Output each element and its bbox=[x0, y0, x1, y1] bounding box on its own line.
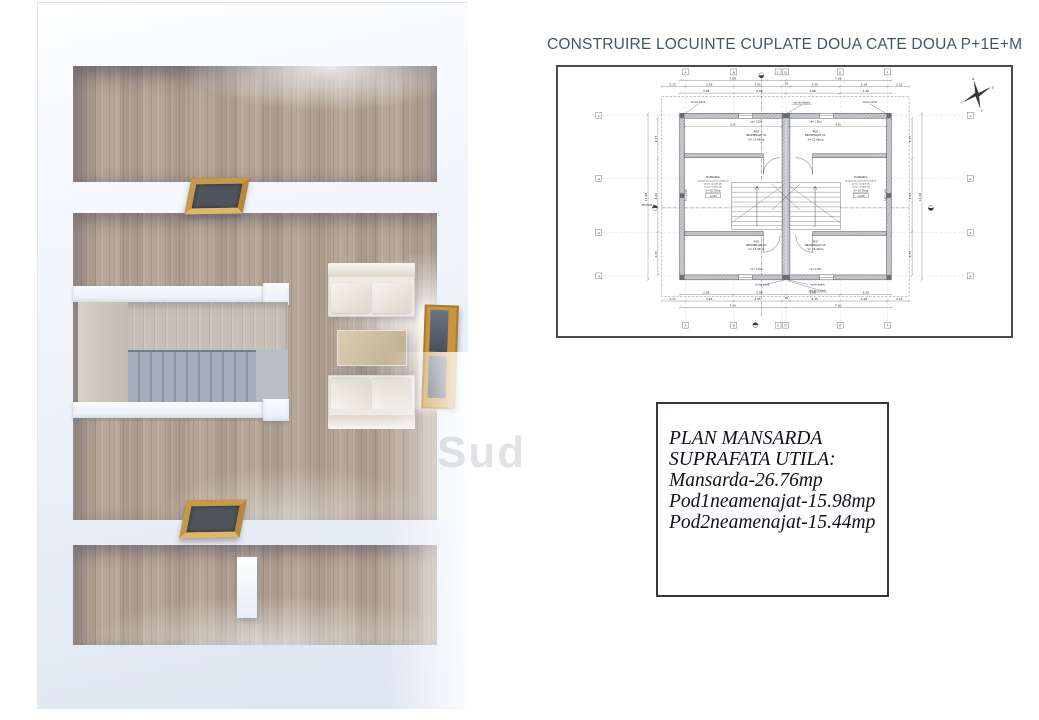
room-finish: pereti: lavabil alb bbox=[852, 182, 871, 185]
sofa-backrest bbox=[328, 263, 415, 277]
downspout-label: burlan patrat bbox=[691, 101, 705, 104]
dimensions-left: 2.73 4.45 4.33 11.48 bbox=[644, 112, 659, 281]
dimensions-bottom: 3.28 3.88 3.88 3.28 2.15 3.28 3.35 .35 3… bbox=[661, 291, 911, 309]
stair-lower-landing bbox=[256, 350, 288, 402]
dim-label: 7.08 bbox=[835, 76, 842, 80]
dim-label: 2.15 bbox=[896, 297, 903, 301]
room-finish: pardoseala: parchet stratificat bbox=[698, 179, 729, 182]
dim-label: 11.48 bbox=[644, 193, 648, 202]
grid-number: 1 bbox=[598, 114, 600, 118]
dim-label: 3.28 bbox=[703, 89, 710, 93]
dim-label: 7.08 bbox=[729, 76, 736, 80]
interior-dim: 6.30 bbox=[730, 123, 736, 126]
grid-letter: B bbox=[733, 71, 735, 75]
legend-line-pod1: Pod1neamenajat-15.98mp bbox=[669, 491, 877, 512]
floor-plan-drawing: SECTIUNE 1 bbox=[558, 67, 1011, 336]
room-area: S= 15.44mp bbox=[808, 247, 824, 251]
grid-number: 2 bbox=[598, 177, 600, 181]
dim-label: 4.45 bbox=[654, 193, 658, 200]
parapet-label: hp= 1.40m bbox=[809, 268, 821, 271]
dim-label: 3.35 bbox=[811, 83, 818, 87]
joint-label: rost de dilatatie bbox=[793, 102, 811, 105]
room-label: POD bbox=[754, 130, 760, 134]
room-label: NEAMENAJAT 02' bbox=[805, 243, 827, 247]
dim-label: 2.15 bbox=[669, 297, 676, 301]
dim-label: 4.33 bbox=[908, 251, 912, 258]
sofa-cushion bbox=[372, 283, 411, 313]
dim-label: 2.73 bbox=[654, 136, 658, 143]
room-area: S= 15.44mp bbox=[748, 247, 764, 251]
room-label: MANSARDA bbox=[706, 176, 720, 179]
room-label: MANSARDA bbox=[854, 176, 868, 179]
legend-line-mansarda: Mansarda-26.76mp bbox=[669, 470, 877, 491]
staircase-left bbox=[732, 182, 782, 229]
level-mark: +2.85 bbox=[857, 195, 865, 198]
dim-label: 4.33 bbox=[654, 251, 658, 258]
legend-line-title: PLAN MANSARDA bbox=[669, 428, 877, 449]
downspout-label: burlan patrat bbox=[863, 101, 877, 104]
room-finish: tavan: lavabil alb bbox=[852, 186, 870, 189]
room-label: NEAMENAJAT 02 bbox=[746, 243, 767, 247]
dim-label: 3.28 bbox=[706, 83, 713, 87]
dim-label: 7.00 bbox=[729, 303, 736, 307]
dim-label: 3.88 bbox=[809, 89, 816, 93]
stair-landing bbox=[78, 302, 128, 402]
grid-number: 3 bbox=[598, 231, 600, 235]
dim-label: 3.28 bbox=[706, 297, 713, 301]
room-label: NEAMENAJAT 01' bbox=[805, 133, 827, 137]
dim-label: 3.28 bbox=[861, 297, 868, 301]
grid-letter: C bbox=[777, 324, 779, 328]
stairwell-wall-bottom bbox=[73, 402, 263, 418]
render-room-pod1-floor bbox=[73, 66, 437, 182]
dimensions-top: 7.08 7.08 2.15 3.28 3.35 .35 3.35 3.28 2… bbox=[661, 76, 911, 94]
grid-letter: F bbox=[887, 324, 889, 328]
compass-e: E bbox=[992, 86, 994, 90]
dim-label: 2.73 bbox=[908, 136, 912, 143]
level-mark: +2.85 bbox=[709, 195, 717, 198]
dim-label: 3.88 bbox=[756, 291, 763, 295]
dim-label: 3.88 bbox=[756, 89, 763, 93]
dim-label: .35 bbox=[784, 296, 789, 300]
downspout-label: burlan patrat bbox=[810, 284, 824, 287]
sheet-title: CONSTRUIRE LOCUINTE CUPLATE DOUA CATE DO… bbox=[547, 36, 1027, 54]
parapet-label: hp= 1.80m bbox=[750, 121, 762, 124]
interior-dim: 6.30 bbox=[836, 123, 842, 126]
dim-label: 3.35 bbox=[811, 297, 818, 301]
sofa-top bbox=[328, 263, 415, 317]
sofa-cushion bbox=[331, 379, 370, 409]
dim-label: 3.35 bbox=[754, 297, 761, 301]
grid-letter: B bbox=[733, 324, 735, 328]
room-label: NEAMENAJAT 01 bbox=[746, 133, 767, 137]
dim-label: 2.15 bbox=[669, 83, 676, 87]
grid-number: 1 bbox=[969, 114, 971, 118]
room-area: S= 15.98mp bbox=[748, 137, 764, 141]
dim-label: 3.28 bbox=[861, 83, 868, 87]
render-fade bbox=[386, 352, 476, 712]
parapet-label: hp= 1.10m bbox=[884, 189, 887, 201]
stair-treads bbox=[128, 350, 256, 404]
grid-number: 4 bbox=[598, 274, 600, 278]
grid-number: 3 bbox=[969, 231, 971, 235]
grid-number: 4 bbox=[969, 274, 971, 278]
dimensions-right: 2.73 4.45 4.33 11.48 bbox=[908, 112, 923, 281]
watermark-text: Sud bbox=[437, 428, 526, 478]
skylight-frame-bottom bbox=[179, 499, 247, 538]
room-finish: tavan: lavabil alb bbox=[704, 186, 722, 189]
dim-label: 3.35 bbox=[754, 83, 761, 87]
staircase bbox=[78, 302, 288, 402]
room-area: S= 26.76mp bbox=[853, 190, 868, 193]
dim-label: 3.88 bbox=[809, 291, 816, 295]
compass-v: V bbox=[960, 100, 963, 104]
dim-label: 7.00 bbox=[835, 303, 842, 307]
grid-letter: A bbox=[684, 71, 686, 75]
dim-label: 3.28 bbox=[863, 291, 870, 295]
skylight-frame-top bbox=[184, 177, 249, 214]
section-label: SECTIUNE 1 bbox=[642, 204, 655, 207]
room-label: POD bbox=[754, 239, 760, 243]
dim-label: 3.28 bbox=[863, 89, 870, 93]
downspout-label: burlan patrat bbox=[755, 284, 769, 287]
wall-stub bbox=[237, 557, 257, 618]
grid-letter: F bbox=[887, 71, 889, 75]
parapet-label: hp= 1.40m bbox=[750, 268, 762, 271]
room-label: POD bbox=[813, 239, 819, 243]
room-label: POD bbox=[813, 130, 819, 134]
grid-letter: C bbox=[777, 71, 779, 75]
room-area: S= 26.76mp bbox=[706, 190, 721, 193]
compass-s: S bbox=[981, 108, 983, 112]
dim-label: 11.48 bbox=[918, 193, 922, 202]
room-finish: pardoseala: parchet stratificat bbox=[845, 179, 876, 182]
staircase-right bbox=[790, 182, 840, 229]
dim-label: 4.45 bbox=[908, 193, 912, 200]
room-finish: pereti: lavabil alb bbox=[704, 182, 723, 185]
stairwell-wall-top bbox=[73, 286, 263, 302]
render-3d-mansarda bbox=[30, 0, 470, 712]
dim-label: .35 bbox=[784, 81, 789, 85]
dim-label: 3.28 bbox=[703, 291, 710, 295]
page: Sud CONSTRUIRE LOCUINTE CUPLATE DOUA CAT… bbox=[0, 0, 1039, 720]
floor-plan-sheet: SECTIUNE 1 bbox=[556, 65, 1013, 338]
grid-letter: E bbox=[839, 324, 841, 328]
stairwell-wall-bottom-end bbox=[263, 399, 289, 421]
parapet-label: hp= 1.80m bbox=[809, 121, 821, 124]
grid-letter: E bbox=[839, 71, 841, 75]
grid-number: 2 bbox=[969, 177, 971, 181]
window-pane bbox=[429, 310, 448, 353]
compass-icon: N E S V bbox=[960, 77, 994, 113]
room-area: S= 15.98mp bbox=[808, 137, 824, 141]
legend-line-subtitle: SUPRAFATA UTILA: bbox=[669, 449, 877, 470]
compass-n: N bbox=[972, 77, 975, 81]
legend-box: PLAN MANSARDA SUPRAFATA UTILA: Mansarda-… bbox=[656, 402, 889, 597]
parapet-label: hp= 1.10m bbox=[685, 189, 688, 201]
dim-label: 2.15 bbox=[896, 83, 903, 87]
legend-line-pod2: Pod2neamenajat-15.44mp bbox=[669, 512, 877, 533]
grid-letter: A bbox=[684, 324, 686, 328]
sofa-cushion bbox=[331, 283, 370, 313]
